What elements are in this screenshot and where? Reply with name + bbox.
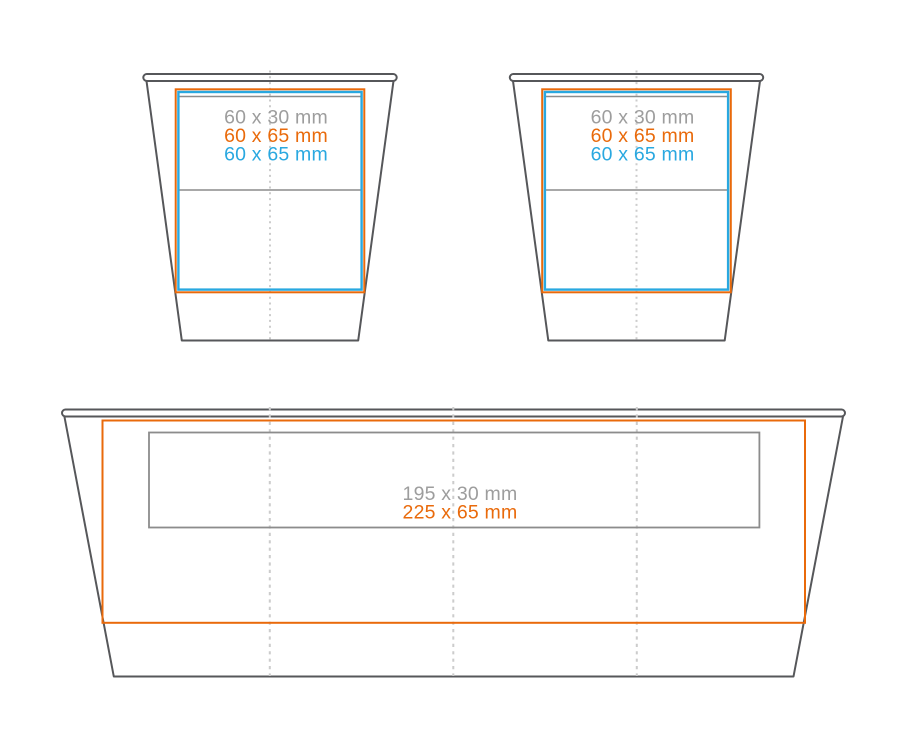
wrap-label-orange: 225 x 65 mm [403,502,518,524]
left-cup: 60 x 30 mm 60 x 65 mm 60 x 65 mm [143,71,396,341]
left-cup-label-blue: 60 x 65 mm [224,143,328,165]
right-cup-label-blue: 60 x 65 mm [591,143,695,165]
print-area-diagram: 60 x 30 mm 60 x 65 mm 60 x 65 mm 60 x 30… [0,0,900,741]
right-cup: 60 x 30 mm 60 x 65 mm 60 x 65 mm [510,71,763,341]
wrap-shape: 195 x 30 mm 225 x 65 mm [62,407,845,677]
diagram-canvas: 60 x 30 mm 60 x 65 mm 60 x 65 mm 60 x 30… [0,0,900,741]
